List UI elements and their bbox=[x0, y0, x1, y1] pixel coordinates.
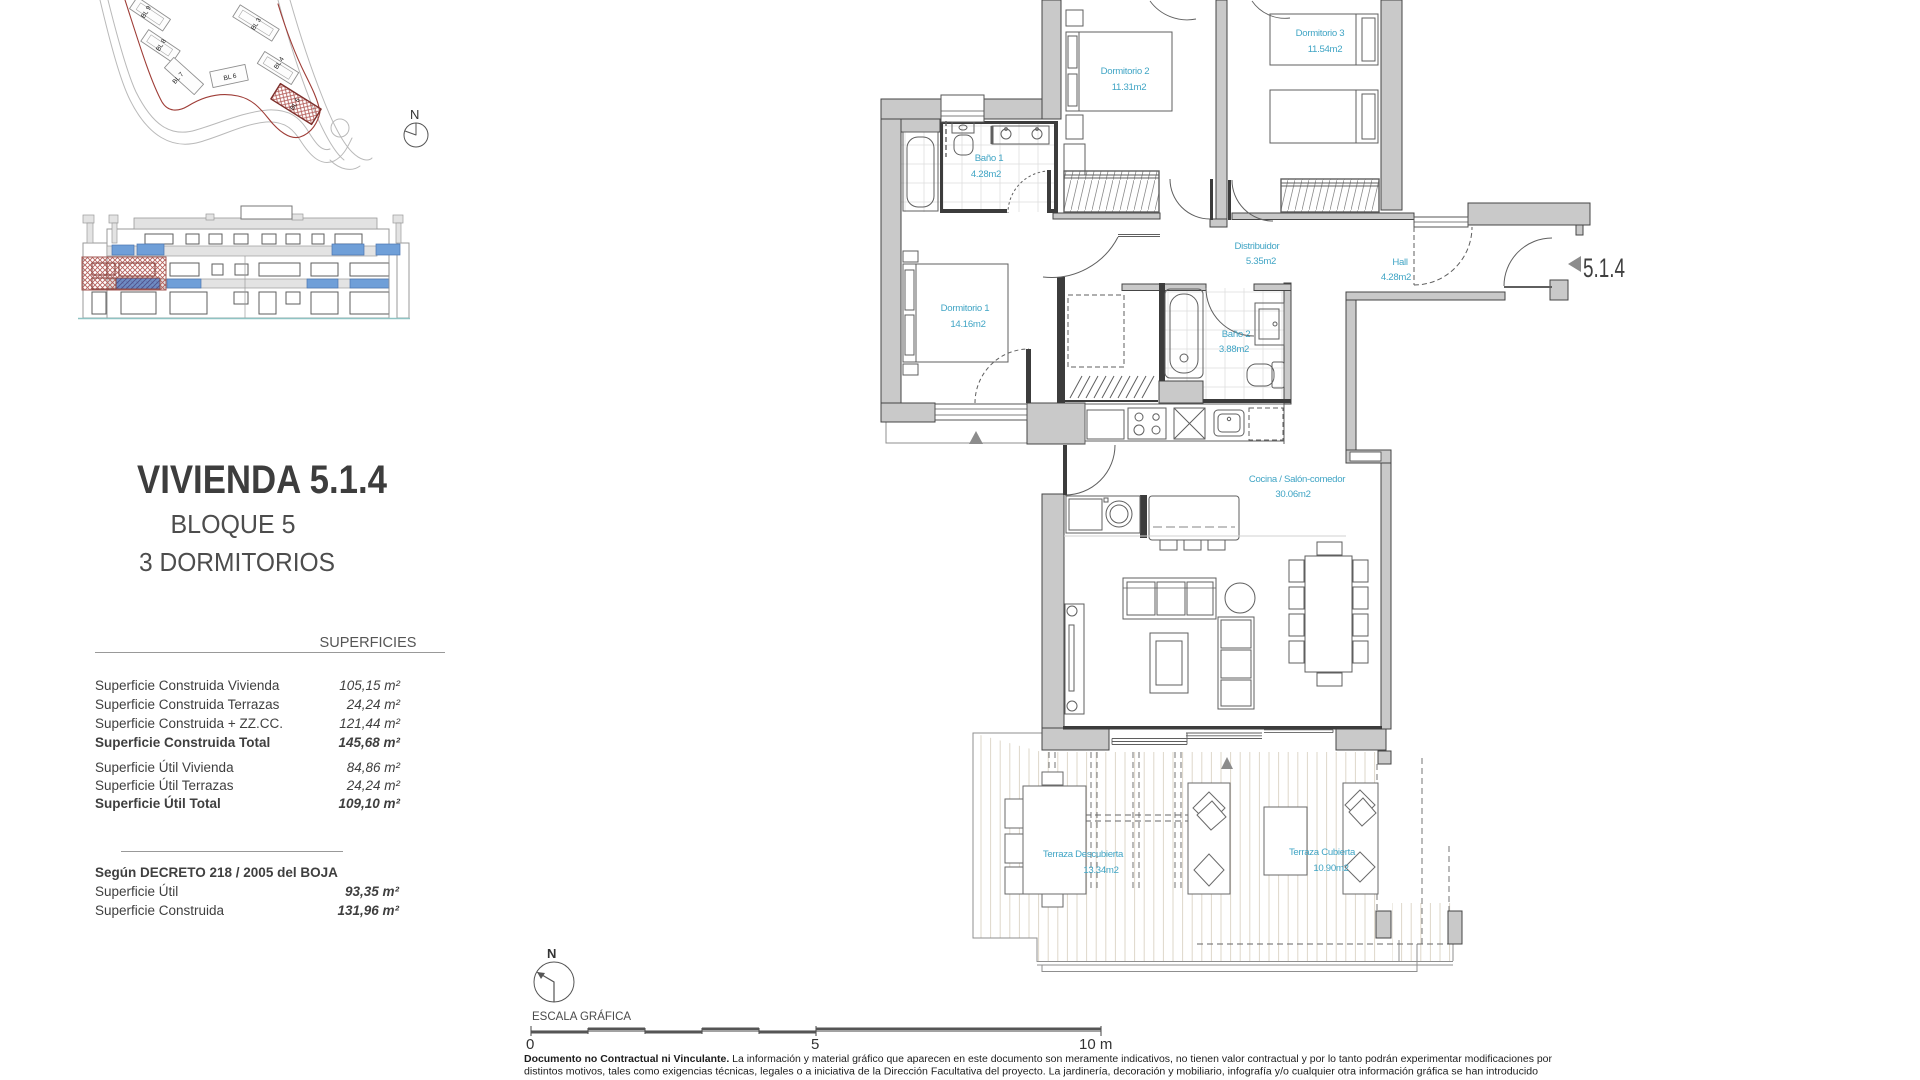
svg-text:14.16m2: 14.16m2 bbox=[950, 319, 985, 330]
svg-text:N: N bbox=[410, 107, 419, 122]
svg-text:93,35 m²: 93,35 m² bbox=[345, 884, 400, 899]
svg-text:Hall: Hall bbox=[1392, 257, 1407, 268]
svg-text:Superficie Útil Vivienda: Superficie Útil Vivienda bbox=[95, 760, 234, 775]
svg-text:Superficie Útil Total: Superficie Útil Total bbox=[95, 796, 221, 811]
svg-text:SUPERFICIES: SUPERFICIES bbox=[320, 635, 417, 651]
svg-text:30.06m2: 30.06m2 bbox=[1275, 489, 1310, 500]
svg-text:Superficie Útil: Superficie Útil bbox=[95, 884, 178, 899]
svg-text:105,15 m²: 105,15 m² bbox=[339, 678, 400, 693]
svg-text:distintos motivos, tales como: distintos motivos, tales como exigencias… bbox=[524, 1067, 1539, 1078]
svg-text:Dormitorio 1: Dormitorio 1 bbox=[941, 303, 990, 314]
svg-text:3 DORMITORIOS: 3 DORMITORIOS bbox=[139, 547, 335, 577]
svg-text:4.28m2: 4.28m2 bbox=[1381, 272, 1411, 283]
svg-text:Distribuidor: Distribuidor bbox=[1235, 241, 1281, 252]
svg-text:Baño 2: Baño 2 bbox=[1222, 329, 1251, 340]
svg-text:5.35m2: 5.35m2 bbox=[1246, 256, 1276, 267]
svg-text:Baño 1: Baño 1 bbox=[975, 153, 1004, 164]
svg-text:24,24 m²: 24,24 m² bbox=[346, 778, 401, 793]
svg-text:24,24 m²: 24,24 m² bbox=[346, 697, 401, 712]
svg-text:Superficie Construida Terrazas: Superficie Construida Terrazas bbox=[95, 697, 280, 712]
svg-text:84,86 m²: 84,86 m² bbox=[347, 760, 401, 775]
svg-text:109,10 m²: 109,10 m² bbox=[338, 796, 400, 811]
svg-text:Según DECRETO 218 / 2005 del B: Según DECRETO 218 / 2005 del BOJA bbox=[95, 865, 338, 880]
svg-text:Superficie Construida: Superficie Construida bbox=[95, 903, 225, 918]
svg-text:Superficie Construida Vivienda: Superficie Construida Vivienda bbox=[95, 678, 280, 693]
svg-text:Dormitorio 2: Dormitorio 2 bbox=[1101, 66, 1150, 77]
svg-text:5.1.4: 5.1.4 bbox=[1583, 253, 1625, 283]
svg-text:5: 5 bbox=[811, 1036, 819, 1053]
svg-text:Terraza Descubierta: Terraza Descubierta bbox=[1043, 849, 1124, 860]
svg-text:10.90m2: 10.90m2 bbox=[1313, 863, 1348, 874]
svg-text:11.54m2: 11.54m2 bbox=[1308, 44, 1343, 55]
svg-text:13.34m2: 13.34m2 bbox=[1083, 865, 1118, 876]
svg-text:VIVIENDA 5.1.4: VIVIENDA 5.1.4 bbox=[137, 458, 388, 502]
svg-text:145,68 m²: 145,68 m² bbox=[338, 735, 400, 750]
svg-text:131,96 m²: 131,96 m² bbox=[337, 903, 399, 918]
svg-text:Superficie Útil Terrazas: Superficie Útil Terrazas bbox=[95, 778, 234, 793]
svg-text:Terraza Cubierta: Terraza Cubierta bbox=[1289, 847, 1356, 858]
svg-text:BLOQUE 5: BLOQUE 5 bbox=[171, 509, 296, 539]
svg-text:3.88m2: 3.88m2 bbox=[1219, 344, 1249, 355]
svg-text:Documento no Contractual ni Vi: Documento no Contractual ni Vinculante. … bbox=[524, 1054, 1553, 1065]
svg-text:Dormitorio 3: Dormitorio 3 bbox=[1296, 28, 1345, 39]
svg-text:121,44 m²: 121,44 m² bbox=[339, 716, 400, 731]
svg-text:Superficie Construida + ZZ.CC.: Superficie Construida + ZZ.CC. bbox=[95, 716, 283, 731]
svg-text:4.28m2: 4.28m2 bbox=[971, 169, 1001, 180]
svg-text:10 m: 10 m bbox=[1079, 1036, 1112, 1053]
svg-text:N: N bbox=[547, 946, 556, 961]
svg-text:ESCALA GRÁFICA: ESCALA GRÁFICA bbox=[532, 1010, 631, 1023]
svg-text:Superficie Construida Total: Superficie Construida Total bbox=[95, 735, 270, 750]
svg-text:0: 0 bbox=[526, 1036, 534, 1053]
svg-text:Cocina / Salón-comedor: Cocina / Salón-comedor bbox=[1249, 474, 1346, 485]
svg-text:11.31m2: 11.31m2 bbox=[1112, 82, 1147, 93]
